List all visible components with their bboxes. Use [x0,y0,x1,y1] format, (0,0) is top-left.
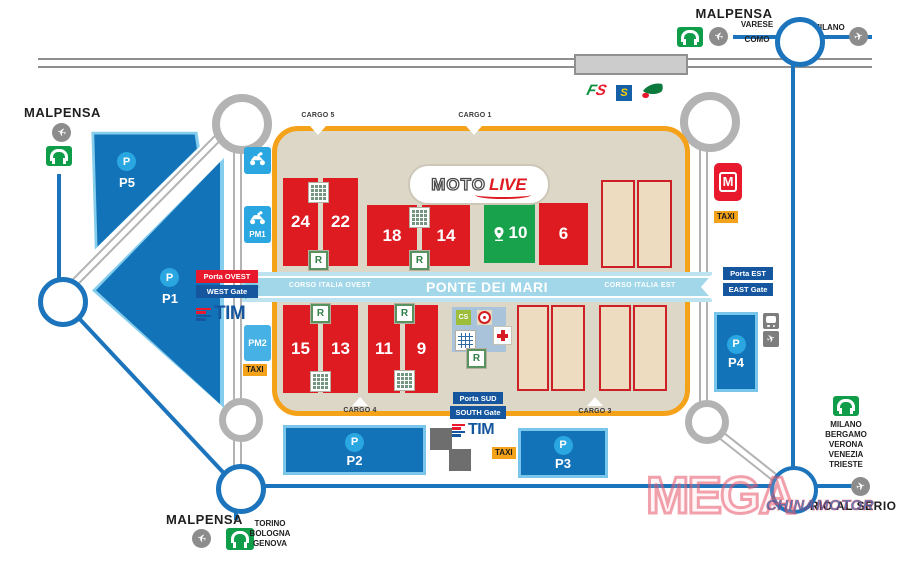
motorcycle-parking-upper [244,147,271,174]
ponte-dei-mari-label: PONTE DEI MARI [392,279,582,295]
cargo-3-gate-notch [587,397,603,406]
roundabout-venue-northwest [212,94,272,154]
tim-bars-icon [196,308,211,321]
parking-icon: P [345,433,364,452]
airplane-icon-bottom-left: ✈ [192,529,211,548]
suburban-s-line-icon: S [616,85,632,101]
bus-icon [763,313,779,329]
parking-icon: P [727,335,746,354]
parking-p3: P P3 [518,428,608,478]
road-left-vertical [57,174,61,280]
trenord-icon [641,82,664,105]
turnstile-icon-services [456,331,475,350]
parking-pm1: PM1 [244,206,271,243]
roundabout-west-blue [38,277,88,327]
gate-east-label-it: Porta EST [723,267,773,280]
gate-west-label-en: WEST Gate [196,285,258,298]
location-pin-icon [492,226,506,241]
hall-6: 6 [539,203,588,265]
parking-p2: P P2 [283,425,426,475]
malpensa-label-top-left: MALPENSA [24,105,101,120]
hall-empty-southeast-2 [551,305,585,391]
first-aid-icon [494,327,511,344]
taxi-badge-west: TAXI [243,364,267,376]
road-right-vertical [791,20,795,486]
malpensa-label-top-right: MALPENSA [684,6,784,21]
como-label: COMO [738,35,776,45]
cargo-3-label: CARGO 3 [570,408,620,415]
parking-pm2: PM2 [244,325,271,361]
parking-icon: P [554,436,573,455]
venue-transport-map: FS S CARGO 5 CARGO 1 CARGO 4 CARGO 3 24 … [0,0,900,577]
gate-south-label-en: SOUTH Gate [450,406,506,419]
hall-empty-northeast-1 [601,180,635,268]
roundabout-southwest-blue [216,464,266,514]
taxi-badge-south: TAXI [492,447,516,459]
trenitalia-fs-icon: FS [585,82,608,99]
cargo-5-gate-notch [310,126,326,135]
gate-west-label-it: Porta OVEST [196,270,258,283]
cargo-4-label: CARGO 4 [335,407,385,414]
restaurant-badge-24-22: R [309,251,328,270]
roundabout-top-right-blue [775,17,825,67]
parking-icon: P [160,268,179,287]
hall-empty-southeast-3 [599,305,631,391]
motorway-icon-top-left [46,146,72,166]
varese-label: VARESE [738,20,776,30]
roundabout-venue-southwest [219,398,263,442]
cs-service-badge: CS [456,310,471,325]
airplane-icon-top-right-east: ✈ [849,27,868,46]
parking-p3-label: P3 [555,456,571,471]
airplane-icon-bottom-right: ✈ [851,477,870,496]
bottom-right-cities: MILANO BERGAMO VERONA VENEZIA TRIESTE [820,420,872,470]
motorcycle-icon [249,151,266,171]
motorway-icon-bottom-right [833,396,859,416]
turnstile-icon-18-14 [410,208,429,227]
taxi-badge-east: TAXI [714,211,738,223]
hall-empty-southeast-1 [517,305,549,391]
restaurant-badge-11-9: R [395,304,414,323]
motolive-moto-text: MOTO [431,175,486,195]
parking-p2-label: P2 [347,453,363,468]
parking-p1: P P1 [92,158,224,408]
road-bottom-horizontal [250,484,855,488]
motolive-live-text: LIVE [489,175,527,195]
hall-14: 14 [422,205,470,266]
target-range-icon [477,310,492,325]
restaurant-badge-15-13: R [311,304,330,323]
bottom-left-cities: TORINO BOLOGNA GENOVA [246,519,294,549]
turnstile-icon-24-22 [309,183,328,202]
gate-east-label-en: EAST Gate [723,283,773,296]
roundabout-venue-northeast [680,92,740,152]
tim-logo-south: TIM [452,421,494,439]
cargo-1-label: CARGO 1 [450,112,500,119]
restaurant-badge-18-14: R [410,251,429,270]
corso-italia-ovest-label: CORSO ITALIA OVEST [280,282,380,289]
building-square-2 [449,449,471,471]
railway-station [574,54,688,75]
roundabout-venue-southeast [685,400,729,444]
parking-p1-label: P1 [154,291,186,306]
parking-pm1-label: PM1 [249,230,265,239]
restaurant-badge-services: R [467,349,486,368]
railway-line [38,58,872,68]
hall-10-motolive: 10 [484,203,535,263]
parking-p4-label: P4 [728,355,744,370]
cargo-5-label: CARGO 5 [293,112,343,119]
motorway-icon-top-right [677,27,703,47]
parking-p4: P P4 [714,312,758,392]
metro-icon: M [714,163,742,201]
turnstile-icon-11-9 [395,371,414,390]
motorcycle-icon [249,210,266,230]
parking-pm2-label: PM2 [248,338,267,348]
corso-italia-est-label: CORSO ITALIA EST [595,282,685,289]
airplane-icon-top-right-west: ✈ [709,27,728,46]
motolive-underline-swoosh [475,191,531,199]
cargo-1-gate-notch [466,126,482,135]
roundabout-southeast-blue [770,466,818,514]
motolive-badge: MOTO LIVE [408,164,550,205]
hall-empty-northeast-2 [637,180,672,268]
gate-south-label-it: Porta SUD [453,392,503,404]
airplane-icon-top-left: ✈ [52,123,71,142]
ring-road-east [699,113,708,419]
hall-22: 22 [323,178,358,266]
tim-bars-icon [452,424,465,437]
shuttle-plane-icon: ✈ [763,331,779,347]
cargo-4-gate-notch [352,397,368,406]
ring-road-west [233,118,242,416]
turnstile-icon-15-13 [311,372,330,391]
tim-logo-west: TIM [196,303,245,325]
hall-empty-southeast-4 [633,305,667,391]
east-gate-arrow-icon [701,272,714,302]
building-square-1 [430,428,452,450]
malpensa-label-bottom-left: MALPENSA [166,512,243,527]
